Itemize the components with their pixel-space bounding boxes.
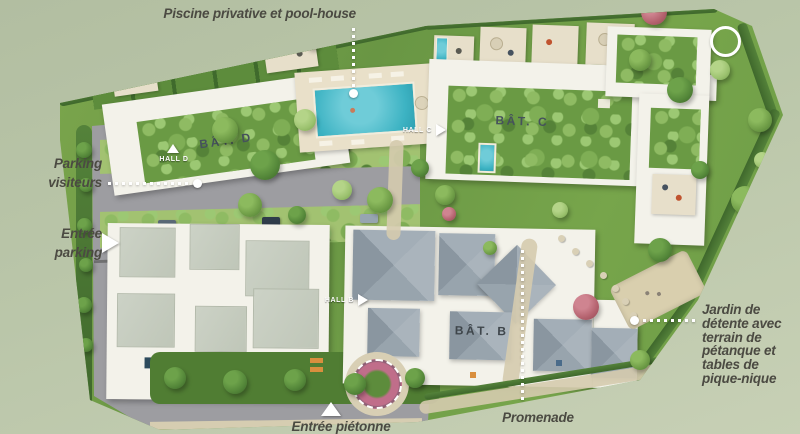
tree [212, 117, 238, 143]
label-line: terrain de [702, 331, 798, 345]
hall-d-label: HALL D [152, 156, 196, 163]
tree [288, 206, 306, 224]
label-jardin: Jardin de détente avec terrain de pétanq… [702, 303, 798, 386]
tree [667, 77, 693, 103]
label-line: Entrée [16, 224, 102, 243]
tree [573, 294, 599, 320]
tree [294, 109, 316, 131]
label-promenade: Promenade [478, 408, 598, 427]
label-line: Parking [16, 154, 102, 173]
stepping-stone [572, 248, 579, 255]
arrow-hall-b [358, 294, 368, 306]
stepping-stone [622, 298, 629, 305]
tree [435, 185, 455, 205]
tree [344, 373, 366, 395]
label-line: pétanque et [702, 344, 798, 358]
leader-line-promenade [521, 250, 524, 404]
tree [754, 152, 770, 168]
hall-b-label: HALL B [316, 297, 354, 304]
tree [164, 367, 186, 389]
label-parking-visiteurs: Parking visiteurs [16, 154, 102, 192]
tree [242, 24, 258, 40]
parasol [274, 38, 290, 54]
vegetation-layer [0, 0, 800, 434]
leader-dot-parking-visiteurs [193, 179, 202, 188]
tree [710, 60, 730, 80]
tree [442, 207, 456, 221]
tree [141, 36, 159, 54]
tree [483, 241, 497, 255]
tree [641, 0, 667, 25]
stepping-stone [612, 285, 619, 292]
label-entree-pietonne: Entrée piétonne [248, 417, 434, 434]
tree [250, 150, 280, 180]
stepping-stone [600, 272, 607, 279]
tree [584, 390, 600, 406]
label-line: pique-nique [702, 372, 798, 386]
label-line: détente avec [702, 317, 798, 331]
tree [728, 242, 768, 282]
label-line: tables de [702, 358, 798, 372]
tree [367, 187, 393, 213]
leader-dot-jardin [630, 316, 639, 325]
tree [284, 369, 306, 391]
tree [76, 297, 92, 313]
arrow-entree-parking [102, 233, 119, 253]
site-plan: BÂT. D [0, 0, 800, 434]
site-grounds: BÂT. D [0, 0, 800, 434]
hall-c-label: HALL C [392, 127, 432, 134]
leader-line-jardin [643, 319, 698, 322]
stepping-stone [558, 235, 565, 242]
leader-line-parking-visiteurs [108, 182, 192, 185]
tree [405, 368, 425, 388]
parasol [136, 72, 150, 86]
arrow-entree-pietonne [321, 402, 341, 416]
arrow-hall-c [436, 124, 446, 136]
tree [238, 193, 262, 217]
tree [748, 108, 772, 132]
tree [552, 202, 568, 218]
tree [629, 49, 651, 71]
tree [332, 180, 352, 200]
tree [305, 35, 319, 49]
terrace-furniture [119, 65, 126, 72]
label-piscine: Piscine privative et pool-house [146, 4, 356, 23]
leader-line-piscine [352, 28, 355, 88]
label-line: Jardin de [702, 303, 798, 317]
label-line: visiteurs [16, 173, 102, 192]
label-entree-parking: Entrée parking [16, 224, 102, 262]
leader-dot-piscine [349, 89, 358, 98]
tree [79, 338, 93, 352]
label-line: parking [16, 243, 102, 262]
tree [648, 238, 672, 262]
ring-marker [710, 26, 741, 57]
tree [731, 186, 759, 214]
tree [223, 370, 247, 394]
stepping-stone [586, 260, 593, 267]
tree [691, 161, 709, 179]
tree [630, 350, 650, 370]
arrow-hall-d [167, 144, 179, 153]
tree [411, 159, 429, 177]
